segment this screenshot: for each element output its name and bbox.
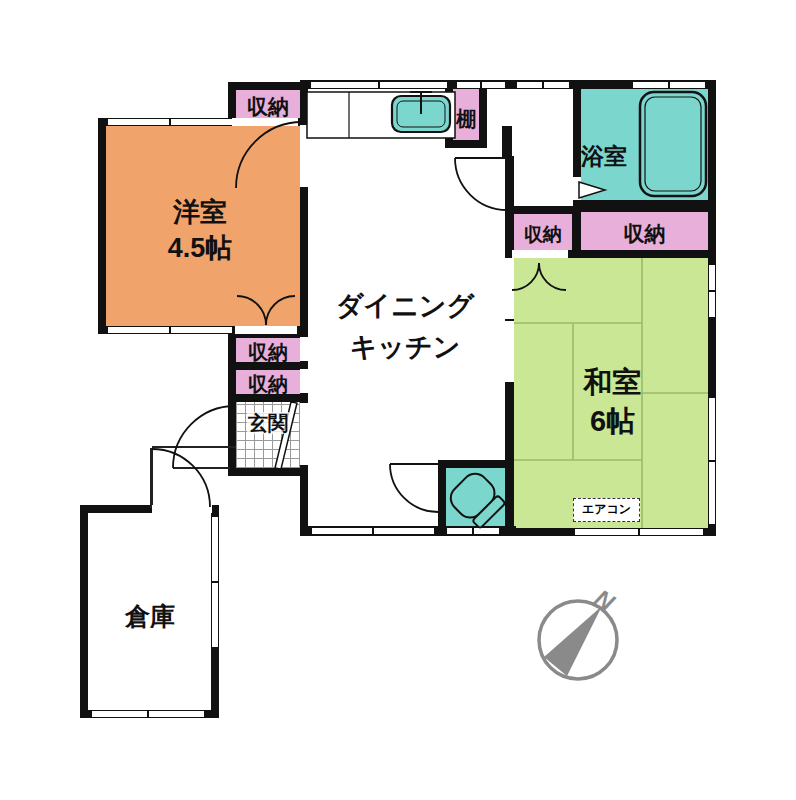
entrance-label: 玄関 [234, 410, 302, 437]
bathroom-label: 浴室 [575, 141, 633, 172]
western-room-label: 洋室 4.5帖 [140, 194, 260, 267]
japanese-room-label: 和室 6帖 [550, 363, 675, 441]
wc-door-arc [390, 464, 438, 512]
hallway-door-arc [455, 158, 507, 210]
dining-kitchen-line1: ダイニング [336, 291, 474, 321]
closet-west1-label: 収納 [236, 339, 300, 366]
dining-kitchen-label: ダイニング キッチン [330, 286, 480, 367]
closet-west2-label: 収納 [236, 371, 300, 398]
closet-center-label: 収納 [514, 222, 572, 248]
western-closet-door-arc [237, 296, 266, 325]
japanese-room-name: 和室 [584, 366, 642, 398]
warehouse-label: 倉庫 [105, 600, 195, 634]
japanese-room-door-arc [539, 263, 566, 290]
entrance-name: 玄関 [247, 412, 289, 434]
entrance-door-arc [173, 406, 235, 468]
closet-east-label: 収納 [581, 220, 708, 248]
aircon-box: エアコン [573, 498, 640, 522]
compass-north-label: N [590, 584, 620, 616]
japanese-room-size: 6帖 [590, 405, 635, 437]
japanese-room-door-arc [512, 263, 539, 290]
warehouse-door-arc [152, 449, 210, 507]
plan-symbols-layer: N [0, 0, 796, 800]
bathtub [640, 92, 706, 196]
bathtub-inner [645, 97, 701, 191]
folding-door-icon [579, 182, 605, 198]
shelf-label: 棚 [453, 106, 479, 133]
closet-top-label: 収納 [236, 93, 300, 121]
toilet-icon [445, 468, 507, 530]
western-room-door-arc [236, 122, 302, 188]
compass: N [539, 584, 620, 679]
western-room-size: 4.5帖 [168, 233, 233, 263]
western-room-name: 洋室 [173, 197, 227, 227]
compass-needle [544, 606, 602, 676]
western-closet-door-arc [266, 296, 295, 325]
floorplan: N 洋室 4.5帖 ダイニング キッチン 浴室 和室 6帖 倉庫 玄関 収納 収… [0, 0, 796, 800]
dining-kitchen-line2: キッチン [350, 332, 461, 362]
